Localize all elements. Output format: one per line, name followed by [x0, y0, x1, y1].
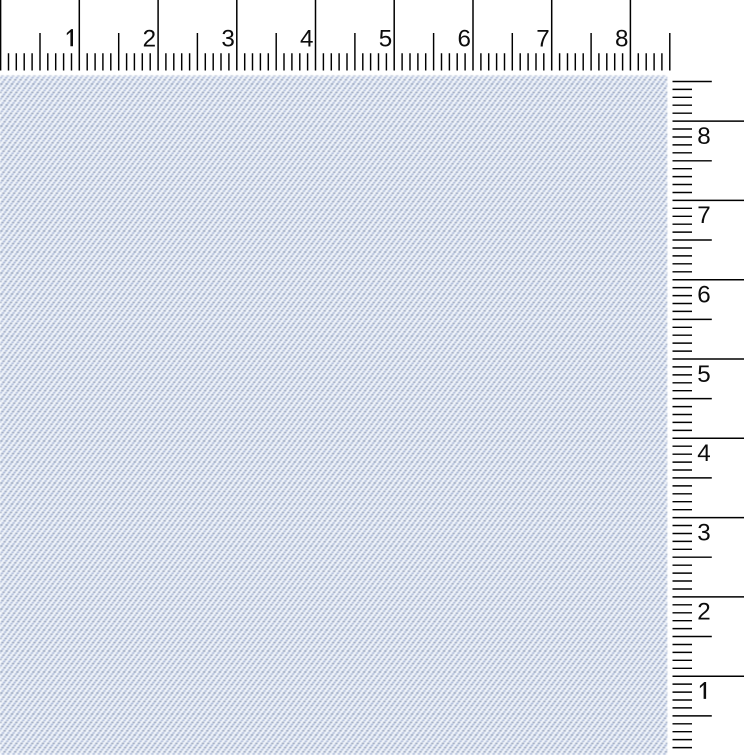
svg-text:8: 8: [697, 123, 710, 150]
svg-text:7: 7: [697, 202, 710, 229]
svg-text:7: 7: [536, 25, 549, 52]
svg-text:4: 4: [697, 440, 710, 467]
svg-text:8: 8: [615, 25, 628, 52]
svg-text:5: 5: [697, 361, 710, 388]
svg-text:3: 3: [221, 25, 234, 52]
svg-text:5: 5: [379, 25, 392, 52]
svg-text:3: 3: [697, 519, 710, 546]
svg-text:6: 6: [458, 25, 471, 52]
svg-text:2: 2: [697, 599, 710, 626]
svg-text:4: 4: [300, 25, 313, 52]
svg-text:2: 2: [143, 25, 156, 52]
svg-text:6: 6: [697, 282, 710, 309]
